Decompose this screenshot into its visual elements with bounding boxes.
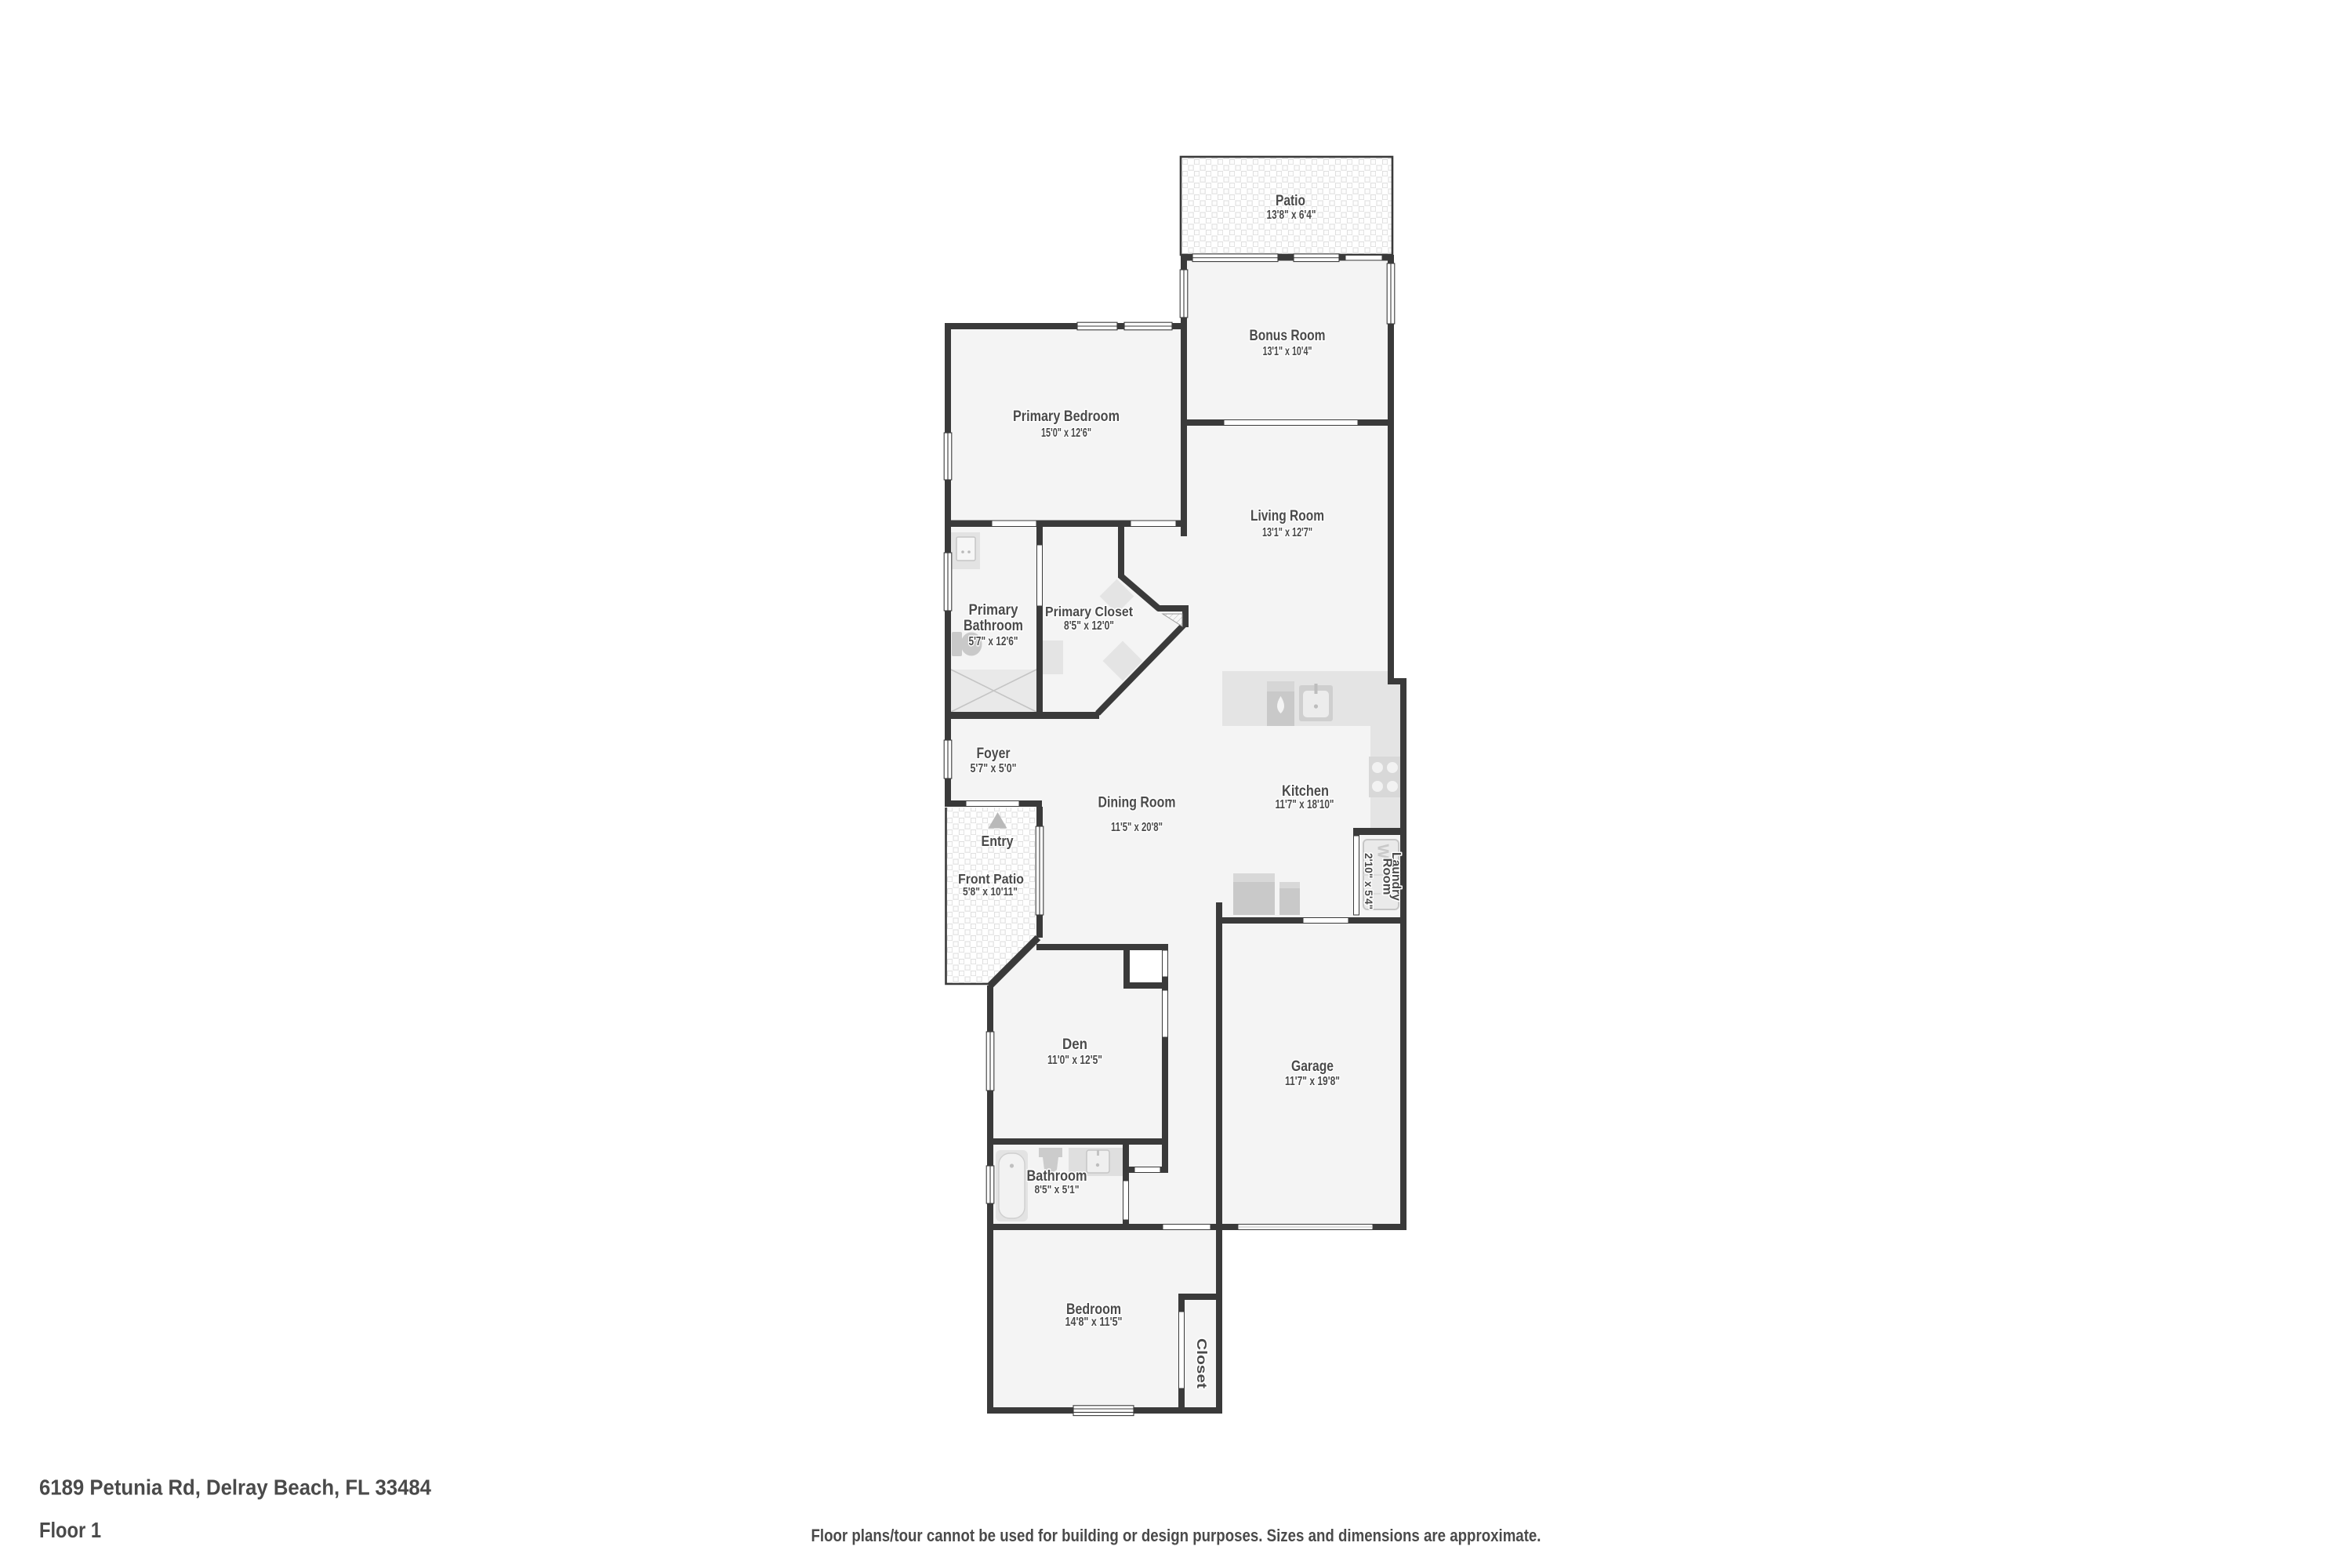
- svg-text:Bathroom: Bathroom: [1027, 1167, 1087, 1185]
- svg-text:13'1" x 12'7": 13'1" x 12'7": [1262, 526, 1312, 539]
- svg-text:13'1" x 10'4": 13'1" x 10'4": [1263, 345, 1312, 358]
- svg-text:Front Patio: Front Patio: [958, 871, 1024, 887]
- svg-text:11'5" x 20'8": 11'5" x 20'8": [1111, 821, 1163, 834]
- svg-text:Room: Room: [1381, 858, 1394, 895]
- svg-text:Primary Bedroom: Primary Bedroom: [1013, 408, 1120, 425]
- svg-text:Floor plans/tour cannot be use: Floor plans/tour cannot be used for buil…: [811, 1526, 1541, 1545]
- svg-text:Closet: Closet: [1194, 1338, 1210, 1388]
- svg-text:5'7" x 5'0": 5'7" x 5'0": [971, 762, 1017, 775]
- svg-text:Garage: Garage: [1291, 1058, 1334, 1075]
- svg-text:11'7" x 19'8": 11'7" x 19'8": [1285, 1075, 1340, 1088]
- svg-text:5'7" x 12'6": 5'7" x 12'6": [969, 635, 1018, 648]
- svg-text:14'8" x 11'5": 14'8" x 11'5": [1065, 1316, 1123, 1329]
- svg-text:Entry: Entry: [982, 833, 1014, 849]
- svg-text:Bonus Room: Bonus Room: [1250, 327, 1326, 344]
- svg-text:Bathroom: Bathroom: [964, 617, 1023, 634]
- svg-text:2'10" x 5'4": 2'10" x 5'4": [1363, 853, 1374, 909]
- svg-text:Floor 1: Floor 1: [39, 1518, 101, 1542]
- svg-text:8'5" x 12'0": 8'5" x 12'0": [1064, 619, 1114, 633]
- svg-text:6189 Petunia Rd, Delray Beach,: 6189 Petunia Rd, Delray Beach, FL 33484: [39, 1475, 432, 1500]
- svg-text:15'0" x 12'6": 15'0" x 12'6": [1041, 426, 1091, 440]
- svg-text:Den: Den: [1062, 1036, 1087, 1053]
- svg-text:11'7" x 18'10": 11'7" x 18'10": [1276, 798, 1334, 811]
- svg-text:Primary: Primary: [969, 601, 1018, 619]
- svg-text:Kitchen: Kitchen: [1282, 782, 1329, 800]
- svg-text:8'5" x 5'1": 8'5" x 5'1": [1035, 1183, 1080, 1196]
- svg-text:Foyer: Foyer: [977, 745, 1011, 762]
- svg-text:Living Room: Living Room: [1250, 507, 1324, 524]
- svg-text:13'8" x 6'4": 13'8" x 6'4": [1267, 209, 1316, 222]
- svg-text:5'8" x 10'11": 5'8" x 10'11": [963, 885, 1018, 898]
- svg-text:Dining Room: Dining Room: [1098, 794, 1176, 811]
- svg-text:11'0" x 12'5": 11'0" x 12'5": [1047, 1054, 1102, 1067]
- svg-text:Patio: Patio: [1276, 192, 1305, 209]
- svg-text:Primary Closet: Primary Closet: [1045, 604, 1133, 619]
- svg-text:W: W: [1374, 844, 1392, 859]
